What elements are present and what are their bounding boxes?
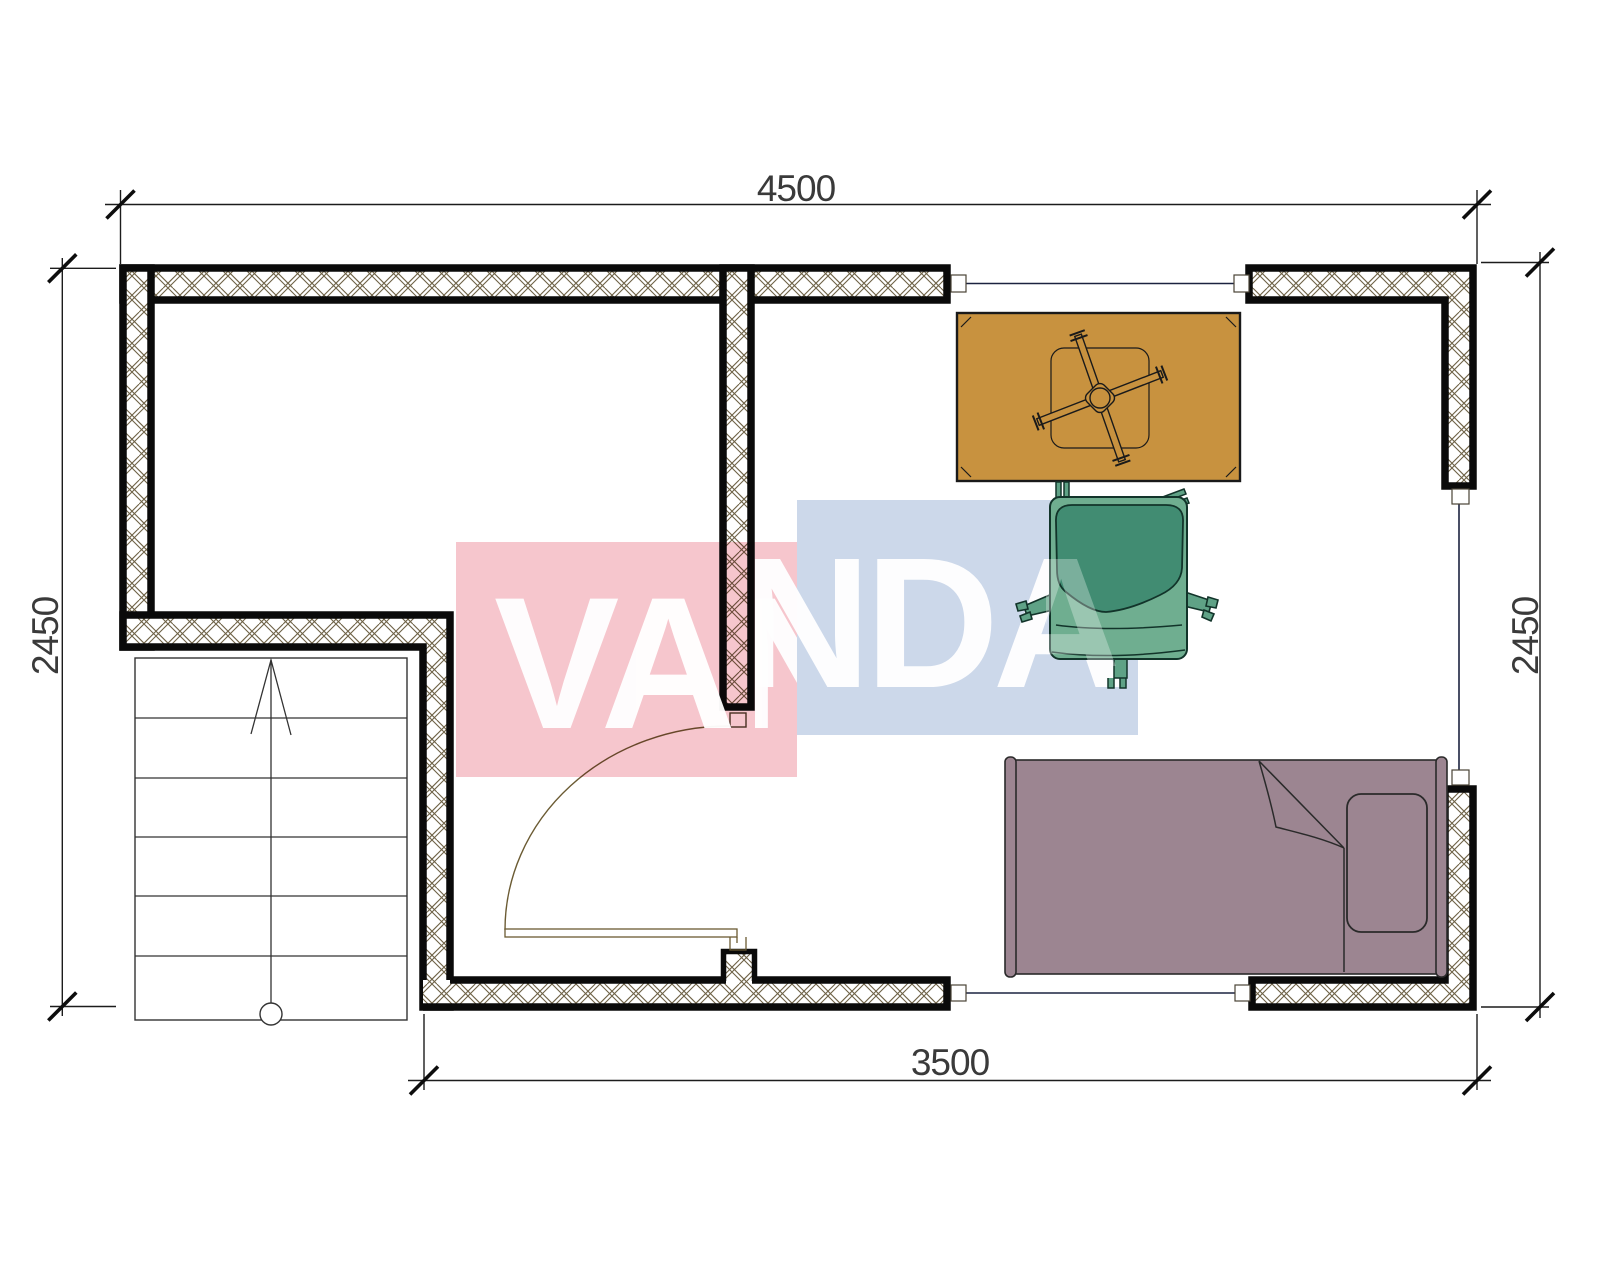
svg-text:2450: 2450 xyxy=(1505,596,1546,675)
svg-text:2450: 2450 xyxy=(25,596,66,675)
svg-text:3500: 3500 xyxy=(911,1042,990,1083)
svg-text:4500: 4500 xyxy=(757,168,836,209)
